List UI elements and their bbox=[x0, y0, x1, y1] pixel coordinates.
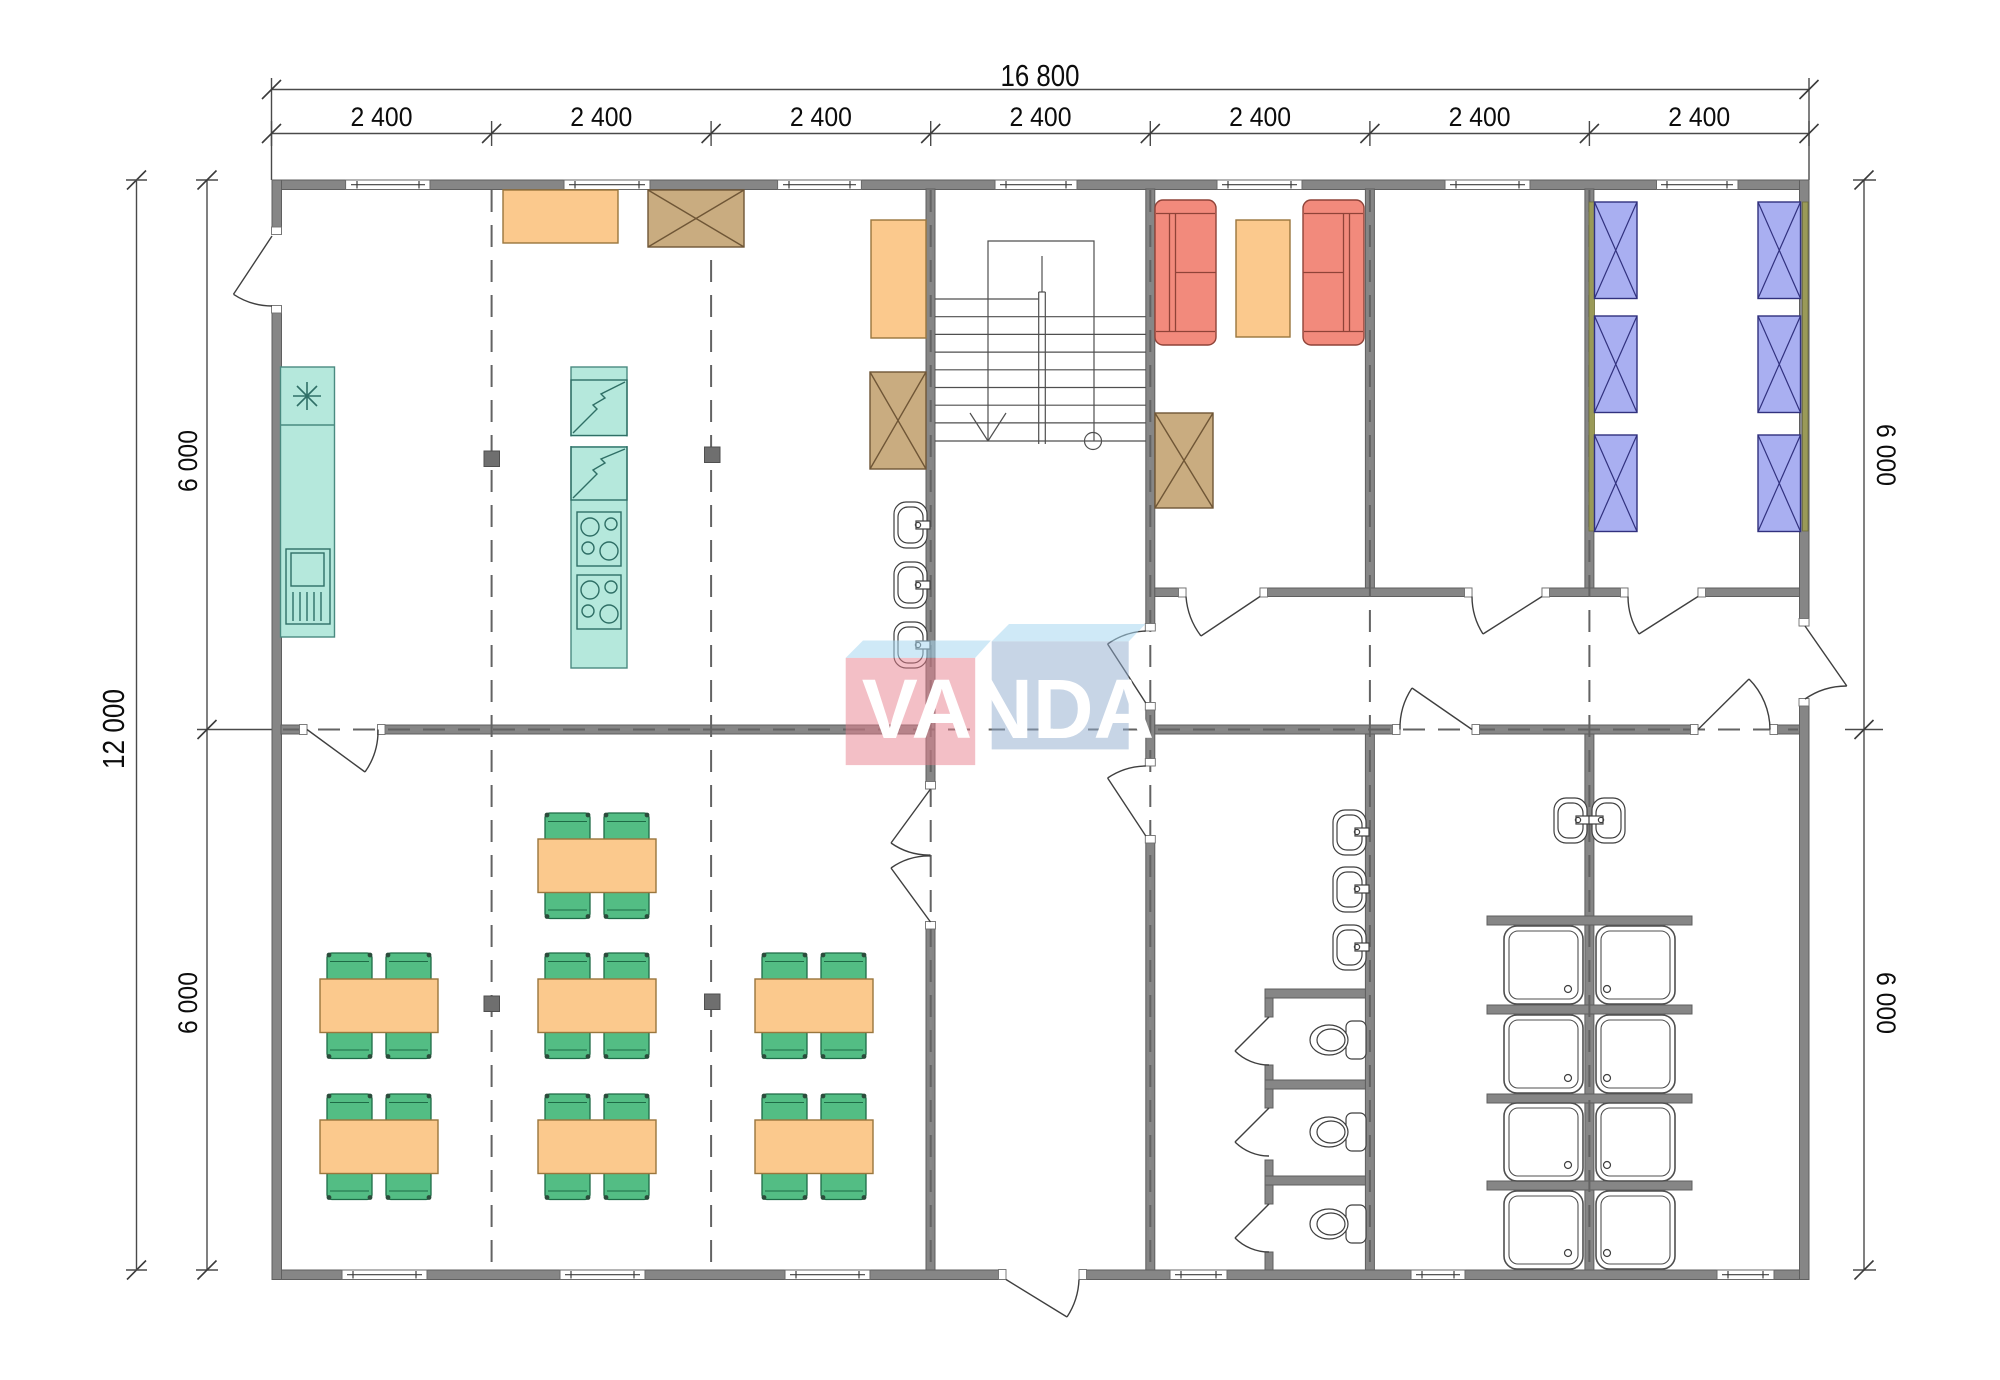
svg-text:6 000: 6 000 bbox=[1871, 972, 1901, 1034]
svg-text:6 000: 6 000 bbox=[1871, 424, 1901, 486]
svg-text:2 400: 2 400 bbox=[1010, 102, 1072, 132]
svg-text:2 400: 2 400 bbox=[790, 102, 852, 132]
svg-text:6 000: 6 000 bbox=[173, 430, 203, 492]
svg-text:12 000: 12 000 bbox=[96, 689, 131, 769]
svg-text:VANDA: VANDA bbox=[862, 662, 1154, 756]
svg-text:2 400: 2 400 bbox=[1668, 102, 1730, 132]
svg-text:16 800: 16 800 bbox=[1001, 58, 1080, 93]
svg-text:6 000: 6 000 bbox=[173, 972, 203, 1034]
svg-text:2 400: 2 400 bbox=[1229, 102, 1291, 132]
svg-text:2 400: 2 400 bbox=[1449, 102, 1511, 132]
svg-text:2 400: 2 400 bbox=[351, 102, 413, 132]
svg-text:2 400: 2 400 bbox=[570, 102, 632, 132]
